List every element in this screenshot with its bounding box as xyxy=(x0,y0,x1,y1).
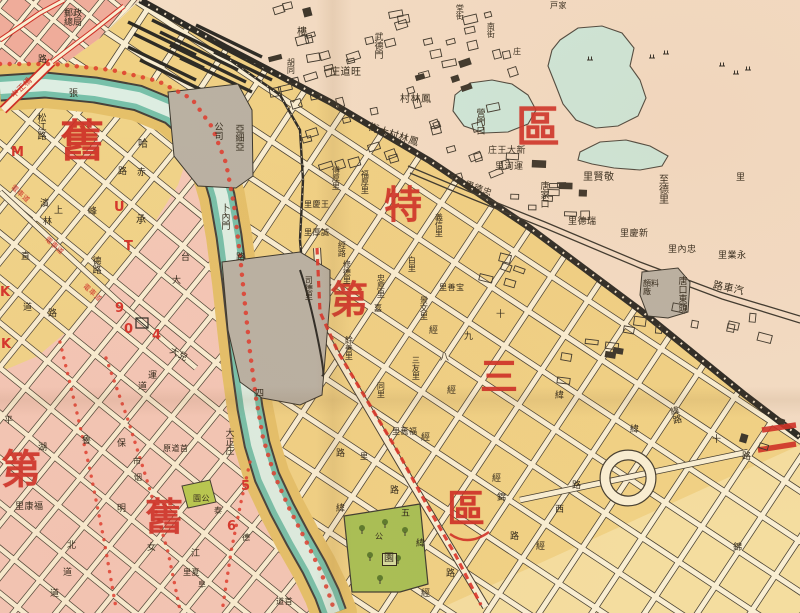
public-park xyxy=(344,504,428,592)
dye-works xyxy=(640,268,690,318)
map-graphics xyxy=(0,0,800,613)
historical-city-map: 舊區特第三區第舊MUTKK90456郵政總局路中正橋張松江路哈路赤電車道電車道電… xyxy=(0,0,800,613)
